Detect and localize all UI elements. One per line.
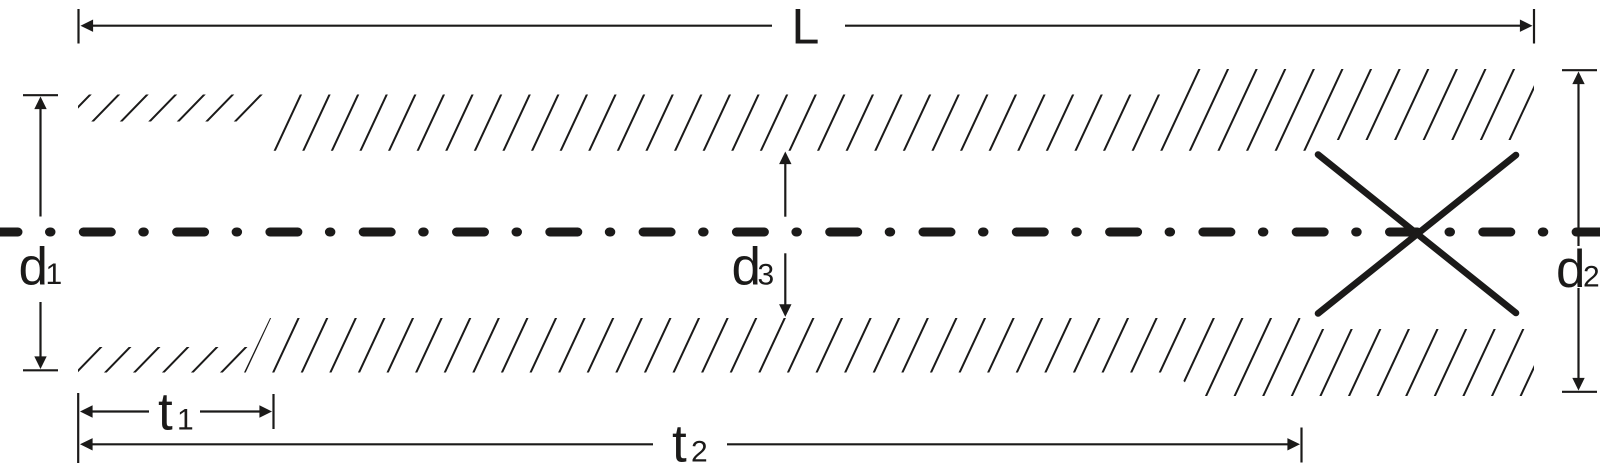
svg-text:2: 2 (1583, 261, 1600, 294)
svg-text:d: d (19, 238, 48, 297)
svg-text:t: t (672, 415, 687, 472)
svg-text:t: t (158, 383, 173, 442)
svg-text:1: 1 (46, 258, 63, 291)
svg-text:L: L (792, 0, 820, 55)
svg-text:2: 2 (691, 436, 708, 469)
svg-text:d: d (1556, 240, 1585, 299)
svg-text:1: 1 (177, 404, 194, 437)
svg-text:3: 3 (758, 259, 775, 292)
